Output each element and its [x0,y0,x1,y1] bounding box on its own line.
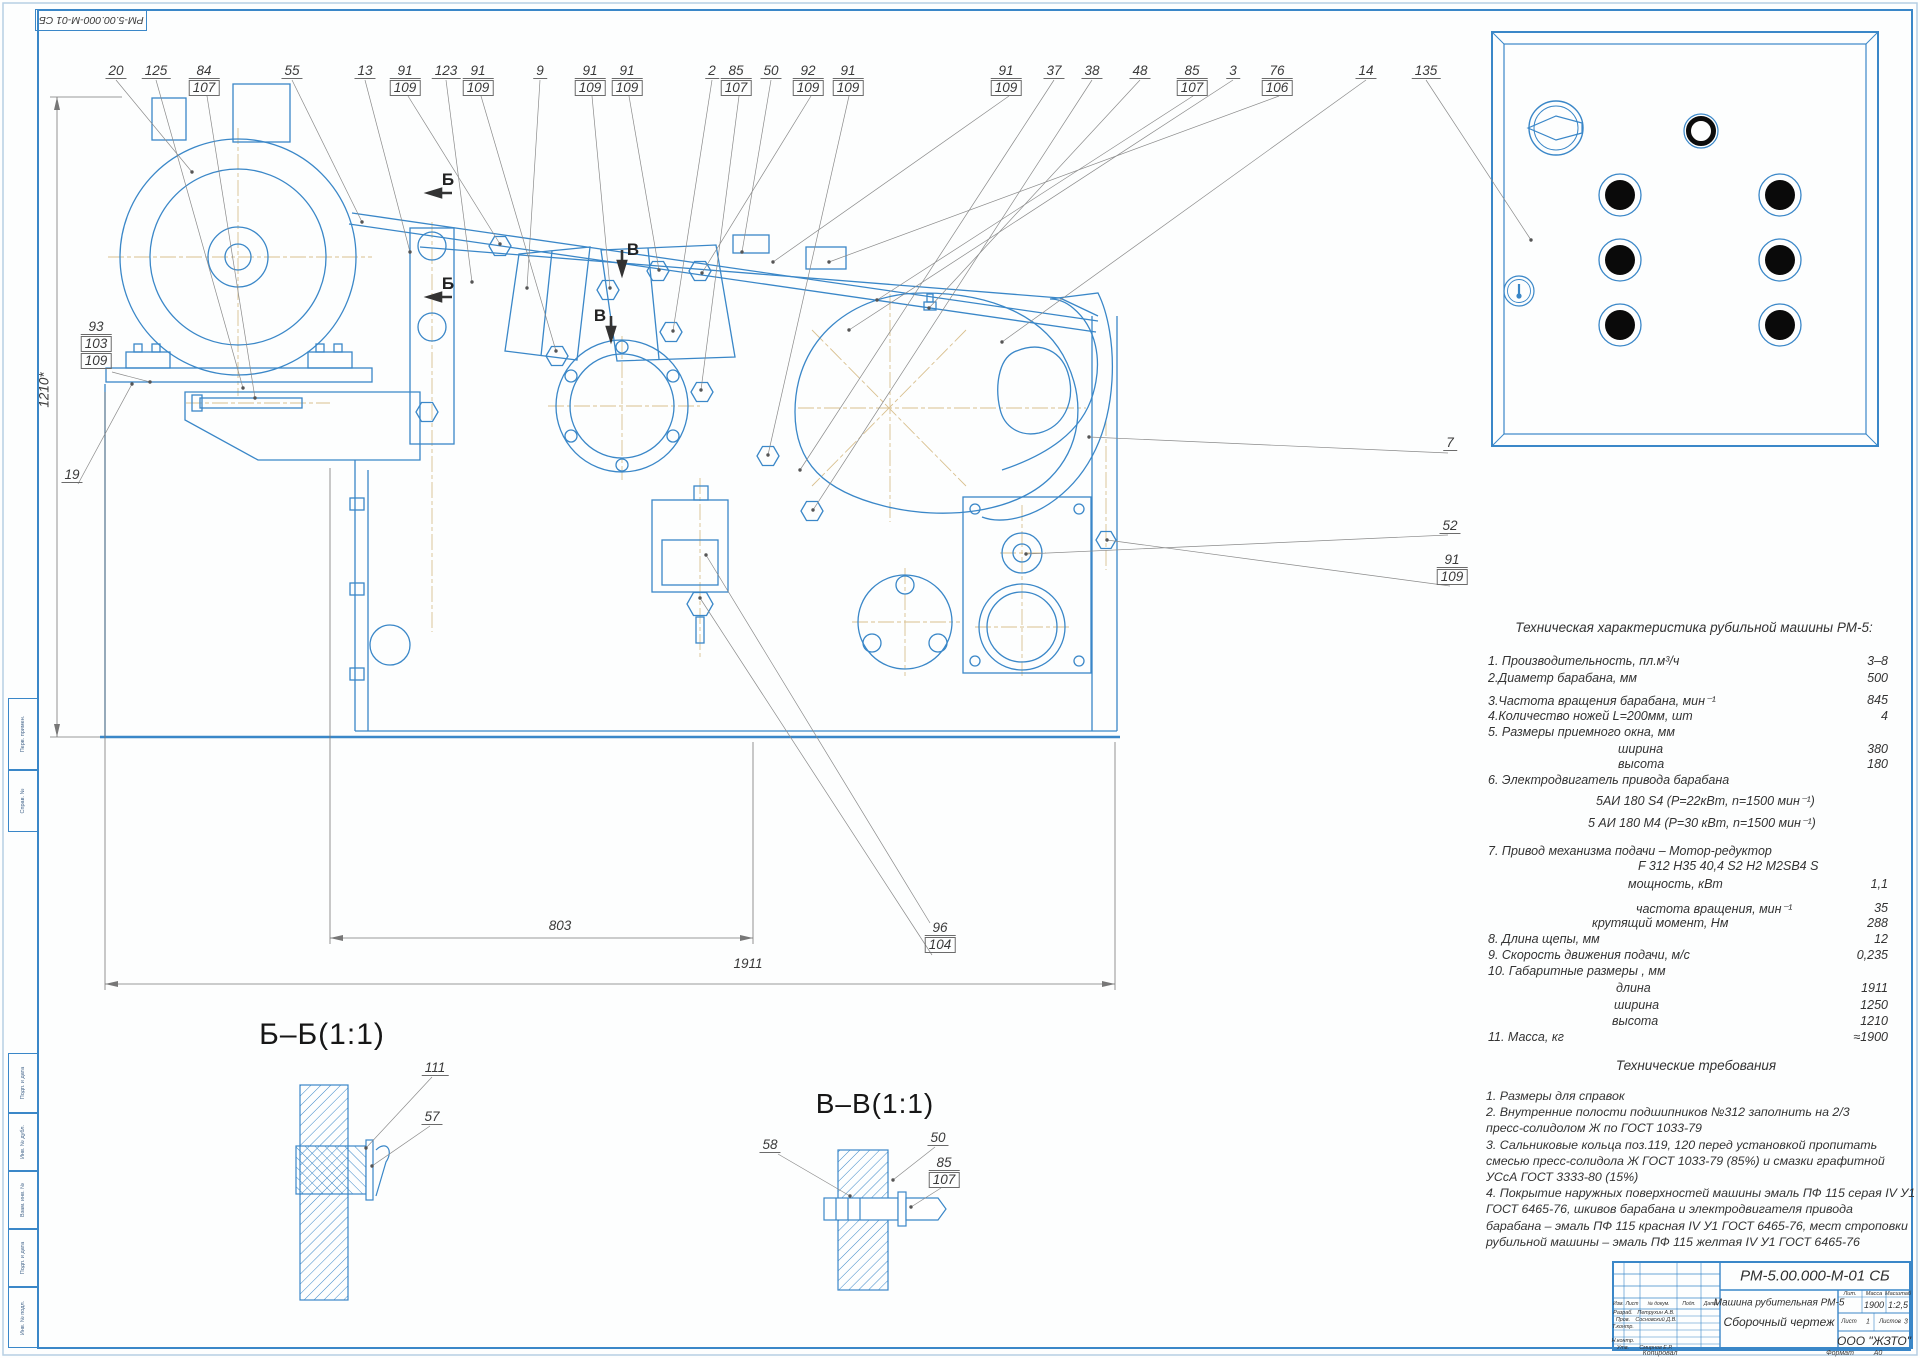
tech-req-line-6: 4. Покрытие наружных поверхностей машины… [1486,1185,1920,1201]
position-number: 135 [1412,64,1441,79]
spec-label: 7. Привод механизма подачи – Мотор-редук… [1488,844,1888,858]
tb-staff-role-4: Н.контр. [1612,1338,1635,1344]
tech-spec-row-18: длина1911 [1488,981,1888,995]
tech-spec-row-2: 3.Частота вращения барабана, мин⁻¹845 [1488,693,1888,708]
part-callout-13: 50 [760,64,781,79]
spec-label: 6. Электродвигатель привода барабана [1488,773,1888,787]
tech-spec-row-20: высота1210 [1488,1014,1888,1028]
position-number: 2 [705,64,719,79]
title-product-name: Машина рубительная РМ-5 [1714,1298,1845,1309]
tech-spec-row-11: F 312 H35 40,4 S2 H2 M2SB4 S [1488,859,1888,873]
part-callout-21: 3 [1226,64,1240,79]
format-value: А0 [1874,1350,1883,1357]
tech-spec-row-10: 7. Привод механизма подачи – Мотор-редук… [1488,844,1888,858]
tech-req-line-2: пресс-солидолом Ж по ГОСТ 1033-79 [1486,1120,1920,1136]
position-number: 91 [463,64,494,79]
tb-staff-role-1: Пров. [1616,1317,1630,1323]
position-number: 91 [390,64,421,79]
spec-value: 3–8 [1867,654,1888,668]
position-number: 48 [1129,64,1150,79]
dimension-lines [50,97,1115,990]
part-callout-29: 91109 [1437,553,1468,585]
position-ref-boxed: 109 [833,80,864,96]
position-number: 9 [533,64,547,79]
position-ref-boxed: 109 [81,353,112,369]
tb-staff-name-0: Петрухин А.В. [1637,1310,1674,1316]
tb-header-col-0: Изм. [1613,1301,1624,1307]
spec-label: высота [1488,757,1888,771]
part-callout-18: 38 [1081,64,1102,79]
position-number: 85 [929,1156,960,1171]
spec-label: мощность, кВт [1488,877,1888,891]
dimension-height: 1210* [37,372,52,407]
spec-value: 380 [1867,742,1888,756]
machine-drawing [100,84,1120,737]
dimension-overall-length: 1911 [733,956,762,971]
part-callout-3: 55 [281,64,302,79]
sheet-value: 1 [1866,1319,1870,1326]
position-ref-boxed: 107 [1177,80,1208,96]
spec-label: 3.Частота вращения барабана, мин⁻¹ [1488,693,1888,708]
spec-label: F 312 H35 40,4 S2 H2 M2SB4 S [1488,859,1888,873]
spec-label: 5. Размеры приемного окна, мм [1488,725,1888,739]
section-bb-label: Б–Б(1:1) [259,1018,385,1052]
position-number: 93 [81,320,112,335]
thermometer-icon [1504,276,1534,306]
dimension-motor-span: 803 [549,918,572,933]
part-callout-6: 123 [432,64,461,79]
part-callout-23: 14 [1355,64,1376,79]
tech-spec-row-21: 11. Масса, кг≈1900 [1488,1030,1888,1044]
tb-staff-name-1: Сосновский Д.В. [1635,1317,1676,1323]
tech-req-title: Технические требования [1486,1058,1906,1073]
position-number: 85 [1177,64,1208,79]
spec-value: 845 [1867,693,1888,707]
sheets-value: 3 [1904,1319,1908,1326]
position-number: 123 [432,64,461,79]
part-callout-30: 96104 [925,921,956,953]
tech-spec-row-4: 5. Размеры приемного окна, мм [1488,725,1888,739]
part-callout-9: 91109 [575,64,606,96]
part-callout-32: 57 [421,1110,442,1125]
position-number: 3 [1226,64,1240,79]
tech-spec-row-16: 9. Скорость движения подачи, м/с0,235 [1488,948,1888,962]
position-ref-boxed: 106 [1262,80,1293,96]
position-number: 92 [793,64,824,79]
title-doc-type: Сборочный чертеж [1724,1315,1835,1329]
tech-spec-row-15: 8. Длина щепы, мм12 [1488,932,1888,946]
part-callout-33: 58 [759,1138,780,1153]
position-number: 85 [721,64,752,79]
position-ref-boxed: 107 [721,80,752,96]
tech-req-line-4: смесью пресс-солидола Ж ГОСТ 1033-79 (85… [1486,1153,1920,1169]
position-number: 91 [1437,553,1468,568]
centerlines [108,128,1106,676]
tb-staff-role-2: Т.контр. [1612,1324,1634,1330]
position-ref-boxed: 109 [390,80,421,96]
tech-spec-row-3: 4.Количество ножей L=200мм, шт4 [1488,709,1888,723]
part-callout-17: 37 [1043,64,1064,79]
tech-spec-row-6: высота180 [1488,757,1888,771]
position-number: 125 [142,64,171,79]
position-number: 19 [61,468,82,483]
spec-label: высота [1488,1014,1888,1028]
tech-req-line-0: 1. Размеры для справок [1486,1088,1920,1104]
part-callout-35: 85107 [929,1156,960,1188]
position-number: 7 [1443,436,1457,451]
section-letter-2: В [627,240,639,260]
tech-spec-row-14: крутящий момент, Нм288 [1488,916,1888,930]
company-name: ООО "ЖЗТО" [1837,1334,1911,1348]
part-callout-26: 19 [61,468,82,483]
position-number: 13 [354,64,375,79]
tech-spec-row-19: ширина1250 [1488,998,1888,1012]
control-panel [1492,32,1878,446]
drawing-sheet: РМ-5.00.000-М-01 СБ Перв. примен.Справ. … [0,0,1920,1358]
corner-doc-stamp: РМ-5.00.000-М-01 СБ [35,9,147,31]
margin-stamp-0: Перв. примен. [8,698,38,770]
spec-label: 5АИ 180 S4 (P=22кВт, n=1500 мин⁻¹) [1488,793,1888,808]
scale-label: Масштаб [1885,1291,1911,1297]
part-callout-5: 91109 [390,64,421,96]
section-vv-label: В–В(1:1) [816,1088,935,1120]
push-buttons [1599,174,1801,346]
margin-stamp-3: Инв. № дубл. [8,1113,38,1171]
position-number: 91 [575,64,606,79]
position-number: 14 [1355,64,1376,79]
part-callout-31: 111 [422,1061,449,1076]
part-callout-8: 9 [533,64,547,79]
position-ref-boxed: 109 [575,80,606,96]
sheet-label: Лист [1841,1319,1856,1325]
position-number: 91 [612,64,643,79]
part-callout-15: 91109 [833,64,864,96]
position-number: 50 [927,1131,948,1146]
section-letter-3: В [594,306,606,326]
position-number: 58 [759,1138,780,1153]
tb-staff-role-0: Разраб. [1613,1310,1633,1316]
part-callout-16: 91109 [991,64,1022,96]
spec-value: 1210 [1860,1014,1888,1028]
spec-value: 12 [1874,932,1888,946]
spec-label: 10. Габаритные размеры , мм [1488,964,1888,978]
key-switch-icon [1528,101,1583,155]
spec-label: ширина [1488,998,1888,1012]
part-callout-14: 92109 [793,64,824,96]
tech-spec-row-8: 5АИ 180 S4 (P=22кВт, n=1500 мин⁻¹) [1488,793,1888,808]
section-vv-view [824,1150,946,1290]
part-callout-24: 135 [1412,64,1441,79]
position-number: 52 [1439,519,1460,534]
position-ref-boxed: 107 [189,80,220,96]
spec-label: 11. Масса, кг [1488,1030,1888,1044]
spec-label: 1. Производительность, пл.м³/ч [1488,654,1888,668]
position-ref-boxed: 109 [612,80,643,96]
position-number: 37 [1043,64,1064,79]
spec-value: 0,235 [1857,948,1888,962]
part-callout-1: 125 [142,64,171,79]
position-ref-boxed: 109 [463,80,494,96]
spec-value: 288 [1867,916,1888,930]
tech-spec-row-12: мощность, кВт1,1 [1488,877,1888,891]
position-ref-boxed: 104 [925,937,956,953]
tech-spec-row-7: 6. Электродвигатель привода барабана [1488,773,1888,787]
spec-label: 2.Диаметр барабана, мм [1488,671,1888,685]
tb-header-col-2: № докум. [1647,1301,1669,1307]
part-callout-7: 91109 [463,64,494,96]
position-ref-boxed: 103 [81,336,112,352]
position-number: 91 [833,64,864,79]
tb-staff-name-5: Смирнов Е.Р. [1639,1345,1672,1351]
section-letter-1: Б [442,274,454,294]
mass-value: 1900 [1864,1300,1884,1310]
spec-value: 1250 [1860,998,1888,1012]
part-callout-22: 76106 [1262,64,1293,96]
spec-value: 500 [1867,671,1888,685]
position-ref-boxed: 109 [991,80,1022,96]
section-bb-view [296,1085,389,1300]
margin-stamp-4: Взам. инв. № [8,1171,38,1229]
lit-label: Лит. [1843,1291,1856,1297]
position-number: 57 [421,1110,442,1125]
position-ref-boxed: 109 [1437,569,1468,585]
spec-label: ширина [1488,742,1888,756]
position-ref-boxed: 107 [929,1172,960,1188]
spec-label: 5 АИ 180 М4 (P=30 кВт, n=1500 мин⁻¹) [1488,815,1888,830]
part-callout-28: 52 [1439,519,1460,534]
spec-label: 8. Длина щепы, мм [1488,932,1888,946]
part-callout-10: 91109 [612,64,643,96]
spec-label: 4.Количество ножей L=200мм, шт [1488,709,1888,723]
section-letter-0: Б [442,170,454,190]
spec-label: 9. Скорость движения подачи, м/с [1488,948,1888,962]
position-number: 50 [760,64,781,79]
spec-label: частота вращения, мин⁻¹ [1488,901,1888,916]
part-callout-0: 20 [105,64,126,79]
corner-doc-number: РМ-5.00.000-М-01 СБ [39,14,144,26]
part-callout-4: 13 [354,64,375,79]
sheets-label: Листов [1879,1319,1901,1325]
part-callout-25: 93103109 [81,320,112,369]
margin-stamp-1: Справ. № [8,770,38,832]
position-number: 55 [281,64,302,79]
tech-spec-row-17: 10. Габаритные размеры , мм [1488,964,1888,978]
margin-stamp-6: Инв. № подл. [8,1287,38,1348]
part-callout-34: 50 [927,1131,948,1146]
spec-label: крутящий момент, Нм [1488,916,1888,930]
tech-spec-row-1: 2.Диаметр барабана, мм500 [1488,671,1888,685]
tech-req-line-1: 2. Внутренние полости подшипников №312 з… [1486,1104,1920,1120]
tech-req-line-3: 3. Сальниковые кольца поз.119, 120 перед… [1486,1137,1920,1153]
tech-spec-title: Техническая характеристика рубильной маш… [1488,620,1900,635]
spec-label: длина [1488,981,1888,995]
part-callout-20: 85107 [1177,64,1208,96]
tech-req-line-5: УСсА ГОСТ 3333-80 (15%) [1486,1169,1920,1185]
tech-req-line-8: барабана – эмаль ПФ 115 красная IV У1 ГО… [1486,1218,1920,1234]
part-callout-27: 7 [1443,436,1457,451]
tb-header-col-3: Подп. [1682,1301,1695,1307]
position-number: 38 [1081,64,1102,79]
tech-spec-row-13: частота вращения, мин⁻¹35 [1488,901,1888,916]
position-number: 84 [189,64,220,79]
position-number: 20 [105,64,126,79]
tb-header-col-4: Дата [1704,1301,1717,1307]
copied-label: Копировал [1643,1350,1678,1357]
position-number: 111 [422,1061,449,1076]
title-doc-number: РМ-5.00.000-М-01 СБ [1740,1268,1890,1285]
part-callout-2: 84107 [189,64,220,96]
tech-spec-row-0: 1. Производительность, пл.м³/ч3–8 [1488,654,1888,668]
tech-req-line-7: ГОСТ 6465-76, шкивов барабана и электрод… [1486,1201,1920,1217]
spec-value: 35 [1874,901,1888,915]
tb-header-col-1: Лист [1626,1301,1639,1307]
scale-value: 1:2,5 [1888,1300,1908,1310]
margin-stamp-5: Подп. и дата [8,1229,38,1287]
spec-value: 1911 [1861,981,1888,995]
position-number: 91 [991,64,1022,79]
spec-value: 180 [1867,757,1888,771]
tech-spec-row-5: ширина380 [1488,742,1888,756]
part-callout-12: 85107 [721,64,752,96]
part-callout-19: 48 [1129,64,1150,79]
position-number: 76 [1262,64,1293,79]
spec-value: ≈1900 [1853,1030,1888,1044]
spec-value: 1,1 [1871,877,1888,891]
mass-label: Масса [1866,1291,1883,1297]
indicator-lamp-icon [1684,114,1718,148]
spec-value: 4 [1881,709,1888,723]
margin-stamp-2: Подп. и дата [8,1053,38,1113]
tech-req-text: 1. Размеры для справок2. Внутренние поло… [1486,1088,1920,1250]
part-callout-11: 2 [705,64,719,79]
position-number: 96 [925,921,956,936]
tech-spec-row-9: 5 АИ 180 М4 (P=30 кВт, n=1500 мин⁻¹) [1488,815,1888,830]
position-ref-boxed: 109 [793,80,824,96]
tb-staff-role-5: Утв. [1617,1345,1629,1351]
format-label: Формат [1826,1350,1854,1357]
tech-req-line-9: рубильной машины – эмаль ПФ 115 желтая I… [1486,1234,1920,1250]
